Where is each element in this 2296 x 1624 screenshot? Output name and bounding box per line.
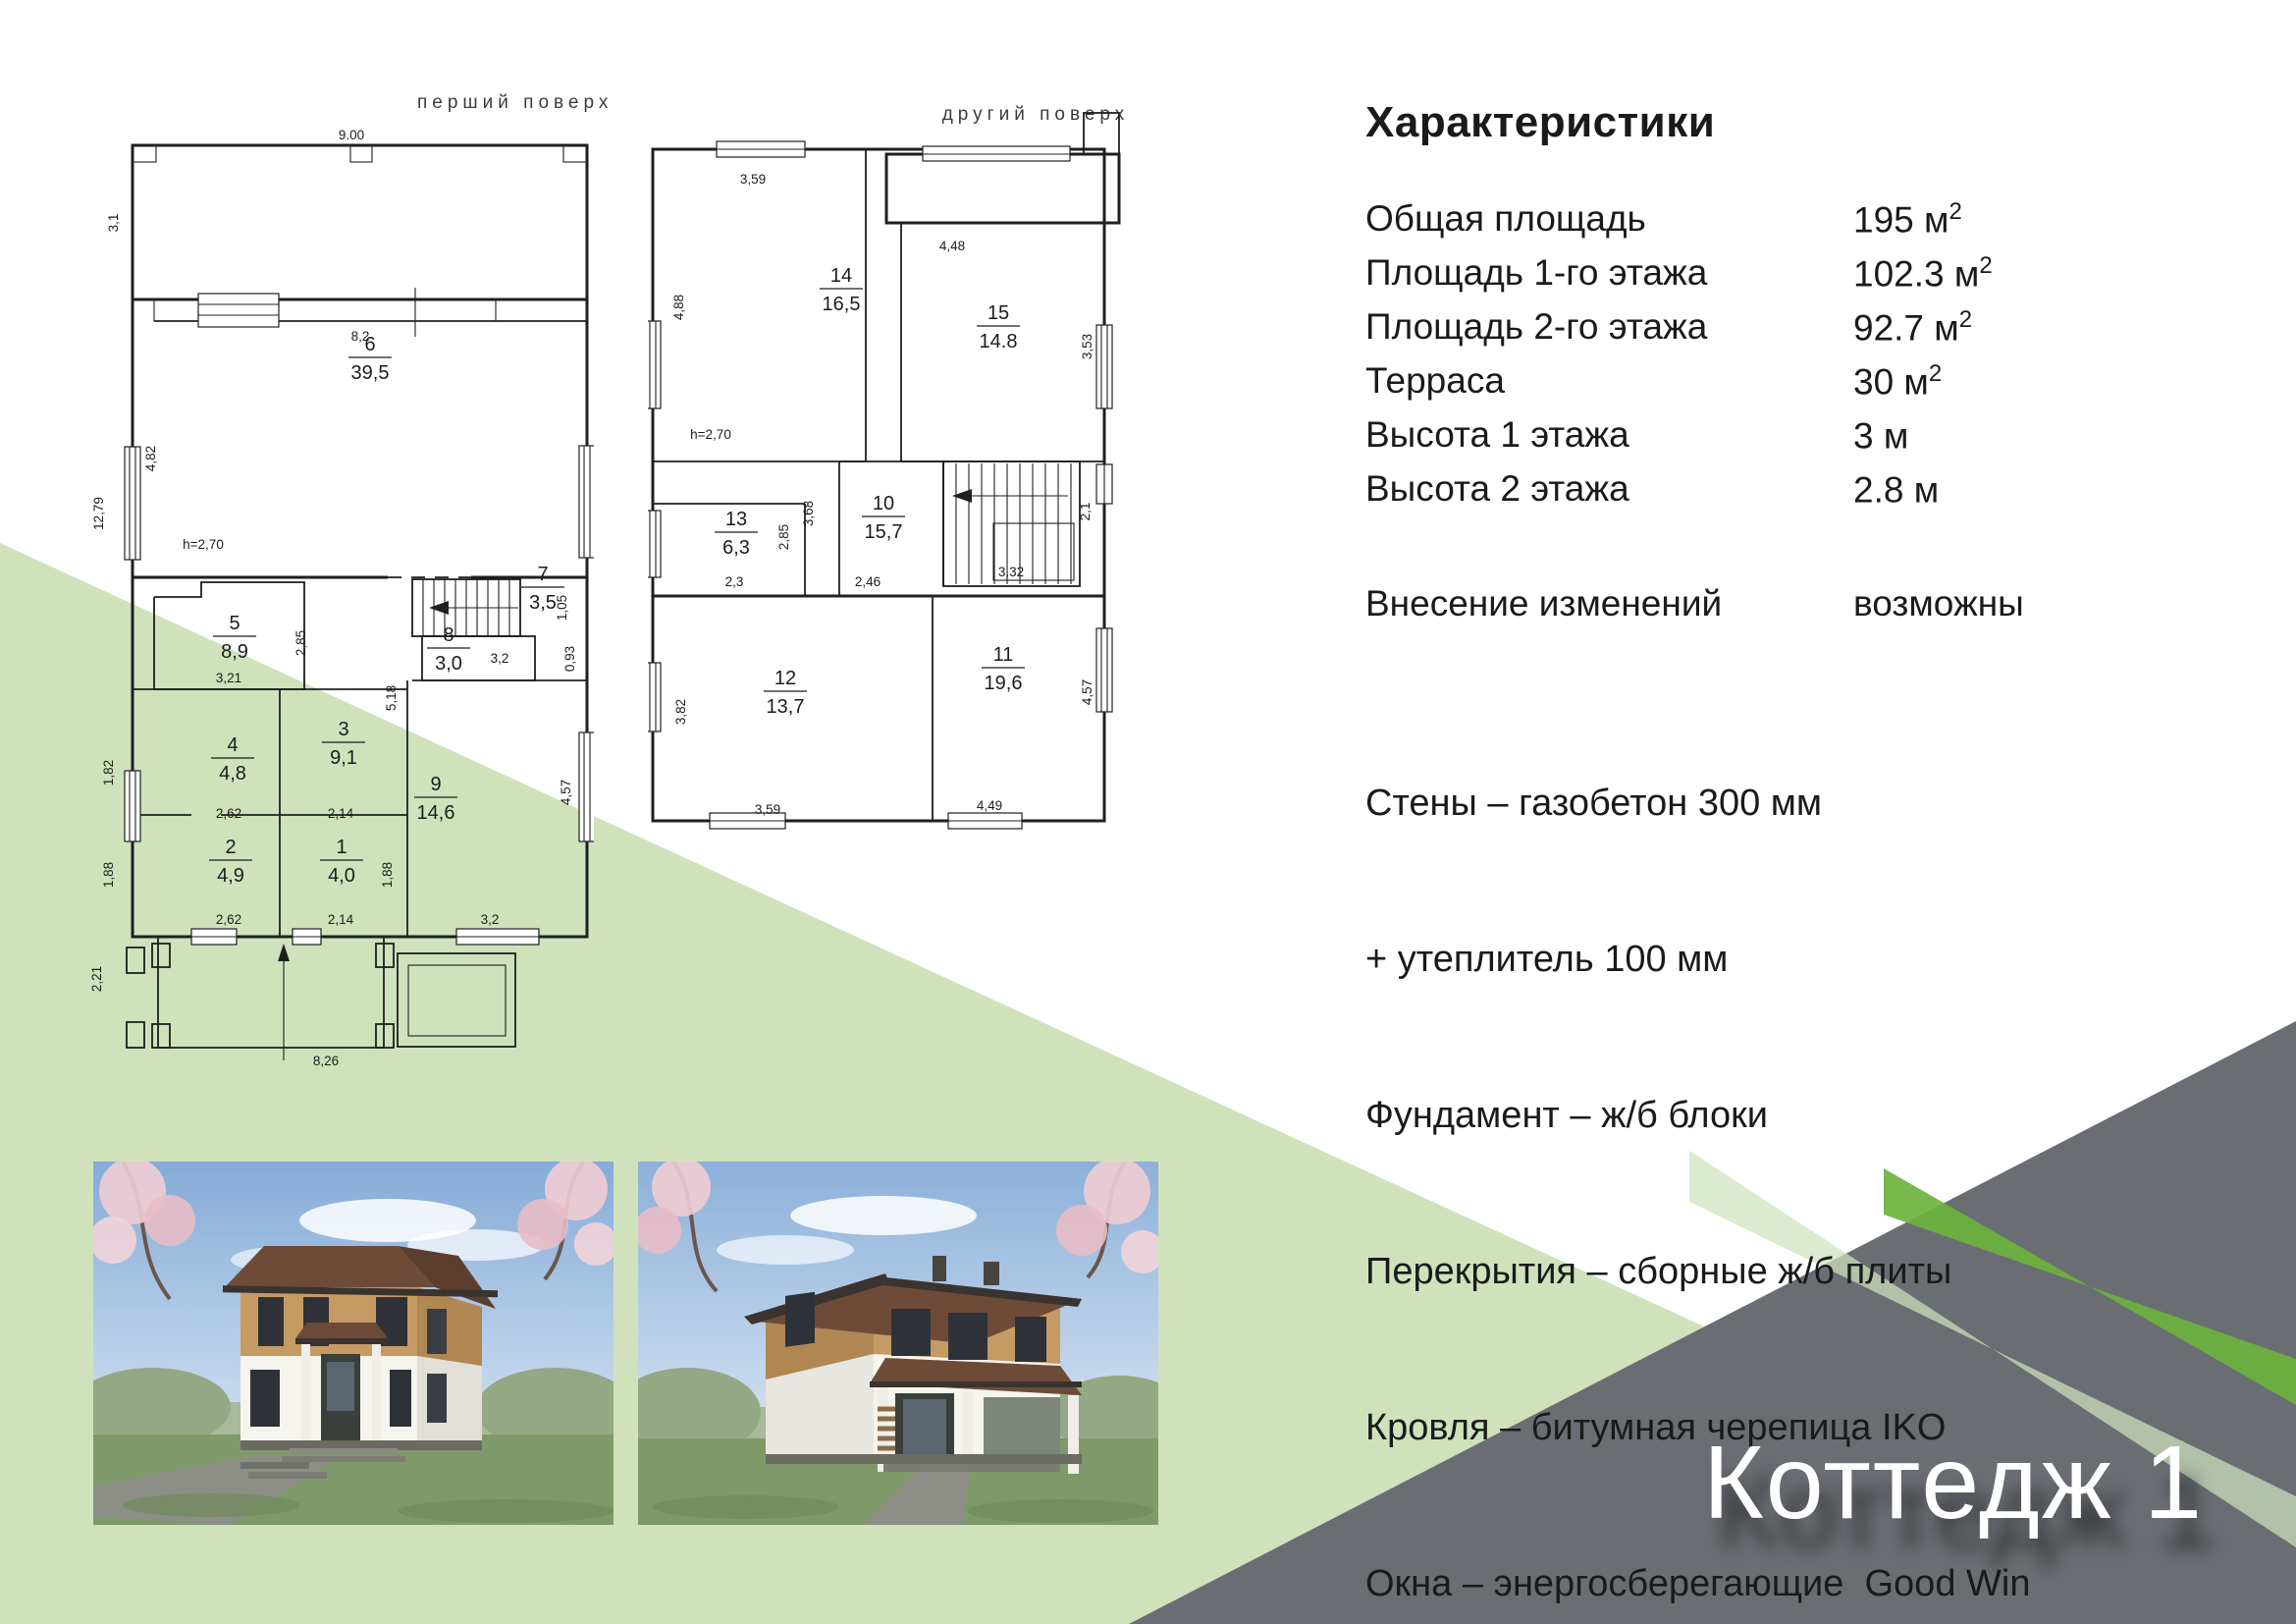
dimension-label: 4,88: [671, 295, 686, 320]
specs-title: Характеристики: [1365, 98, 1715, 147]
plan2-outer-wall: [653, 149, 1104, 821]
plan1-window: [579, 732, 594, 841]
spec-label: Общая площадь: [1365, 198, 1646, 240]
dimension-label: 9.00: [339, 128, 364, 142]
plan1-porch-post: [152, 944, 170, 967]
room-area: 9,1: [330, 747, 357, 769]
spec-label: Высота 1 этажа: [1365, 414, 1629, 456]
dimension-label: 8,2: [351, 329, 370, 344]
dimension-label: 0,93: [562, 646, 577, 672]
changes-note-value: возможны: [1853, 583, 2024, 624]
room-number: 5: [229, 613, 240, 634]
plan2-window: [923, 146, 1070, 161]
specs-table: Общая площадь 195 м2 Площадь 1-го этажа …: [1365, 198, 2288, 522]
room-number: 9: [430, 774, 441, 795]
room-number: 15: [988, 302, 1009, 324]
dimension-label: 2,62: [216, 912, 241, 927]
room-number: 10: [873, 493, 894, 514]
plan1-corner-block: [563, 145, 587, 162]
plan1-porch-post: [127, 947, 144, 973]
plan1-window: [125, 771, 140, 841]
dimension-label: 2,62: [216, 806, 241, 821]
changes-note-label: Внесение изменений: [1365, 583, 1722, 624]
dimension-label: 1,05: [555, 595, 569, 621]
dimension-label: 2,14: [328, 806, 354, 821]
spec-row: Площадь 2-го этажа 92.7 м2: [1365, 306, 2288, 360]
room-area: 19,6: [985, 673, 1023, 694]
room-area: 4,9: [217, 865, 244, 887]
plan2-window: [1096, 628, 1112, 712]
dimension-label: 4,57: [559, 780, 573, 805]
plan2-window: [717, 141, 805, 157]
house-render-front-photo: [93, 1162, 614, 1525]
brochure-slide: перший поверх: [0, 0, 2296, 1624]
dimension-label: h=2,70: [690, 427, 731, 442]
room-area: 3,5: [529, 592, 557, 614]
plan2-window: [1096, 464, 1112, 504]
room-number: 8: [443, 624, 454, 646]
plan1-window: [125, 447, 140, 560]
dimension-label: 1,88: [101, 862, 116, 888]
dimension-label: 2,14: [328, 912, 354, 927]
room-number: 13: [725, 509, 747, 530]
room-area: 4,0: [328, 865, 355, 887]
spec-value: 195 м2: [1853, 198, 1962, 241]
dimension-label: 3,1: [106, 214, 121, 233]
spec-label: Площадь 1-го этажа: [1365, 252, 1707, 294]
room-number: 12: [774, 668, 796, 689]
room-area: 14.8: [980, 331, 1018, 352]
changes-note: Внесение изменений возможны: [1365, 583, 2288, 637]
dimension-label: 3,32: [998, 565, 1024, 579]
plan2-window: [1096, 325, 1112, 408]
dimension-label: 3,68: [801, 501, 816, 526]
plan2-stair-arrowhead: [952, 489, 972, 503]
plan2-balcony: [886, 154, 1119, 223]
plan1-stair-arrowhead: [429, 601, 449, 615]
dimension-label: 2,3: [725, 574, 744, 589]
plan1-porch-post: [127, 1022, 144, 1048]
plan1-window: [293, 929, 321, 945]
plan1-terrace-slab: [398, 953, 515, 1047]
spec-value: 3 м: [1853, 414, 1908, 457]
room-area: 3,0: [435, 653, 462, 675]
dimension-label: 2,21: [89, 966, 104, 992]
room-number: 1: [336, 837, 347, 858]
plan1-porch-post: [376, 1024, 394, 1048]
first-floor-plan: 639,558,973,583,044,839,1914,624,914,09.…: [83, 83, 594, 1075]
room-area: 39,5: [351, 362, 390, 384]
dimension-label: 3,82: [673, 699, 688, 725]
room-area: 15,7: [865, 521, 903, 543]
plan1-porch-post: [152, 1024, 170, 1048]
room-number: 2: [225, 837, 236, 858]
room-area: 4,8: [219, 763, 246, 785]
room-number: 4: [227, 734, 238, 756]
plan1-window: [198, 294, 279, 327]
dimension-label: 1,82: [101, 760, 116, 785]
plan2-window: [648, 663, 661, 731]
spec-value: 102.3 м2: [1853, 252, 1993, 295]
dimension-label: 4,82: [143, 446, 158, 471]
dimension-label: 2,46: [855, 574, 881, 589]
dimension-label: h=2,70: [183, 537, 224, 552]
dimension-label: 4,48: [939, 239, 965, 253]
spec-value: 2.8 м: [1853, 468, 1939, 511]
plan2-window: [948, 813, 1022, 829]
plan1-window: [456, 929, 539, 945]
dimension-label: 3,2: [481, 912, 500, 927]
room-number: 14: [830, 265, 852, 287]
construction-line: Перекрытия – сборные ж/б плиты: [1365, 1246, 2030, 1298]
construction-line: Окна – энергосберегающие Good Win: [1365, 1558, 2030, 1610]
dimension-label: 3,59: [740, 172, 766, 187]
room-area: 8,9: [221, 641, 248, 663]
plan1-entry-arrowhead: [278, 944, 290, 961]
page-title: Коттедж 1: [1669, 1424, 2238, 1543]
dimension-label: 2,85: [776, 524, 791, 550]
plan1-terrace-slab-inner: [408, 965, 506, 1036]
construction-line: Фундамент – ж/б блоки: [1365, 1090, 2030, 1142]
plan1-corner-block: [133, 145, 156, 162]
dimension-label: 12,79: [91, 497, 106, 530]
dimension-label: 2,85: [294, 630, 308, 656]
room-area: 6,3: [722, 537, 750, 559]
room-area: 14,6: [417, 802, 455, 824]
spec-row: Общая площадь 195 м2: [1365, 198, 2288, 252]
plan2-window: [648, 511, 661, 577]
room-area: 16,5: [823, 294, 861, 315]
dimension-label: 3,53: [1080, 334, 1095, 359]
plan2-window: [648, 321, 661, 408]
dimension-label: 4,49: [977, 798, 1002, 813]
spec-value: 30 м2: [1853, 360, 1942, 403]
dimension-label: 5,18: [384, 685, 399, 711]
second-floor-plan: 1416,51514.81015,7136,31213,71119,63,594…: [648, 83, 1139, 849]
dimension-label: 3,59: [755, 802, 780, 817]
dimension-label: 2,1: [1078, 503, 1093, 521]
dimension-label: 3,2: [491, 651, 509, 666]
room-number: 3: [338, 719, 348, 740]
room-number: 7: [537, 564, 548, 585]
dimension-label: 8,26: [313, 1054, 339, 1068]
plan1-porch-post: [376, 944, 394, 967]
spec-row: Терраса 30 м2: [1365, 360, 2288, 414]
room-number: 11: [993, 644, 1014, 666]
spec-label: Терраса: [1365, 360, 1505, 402]
dimension-label: 4,57: [1080, 679, 1095, 705]
dimension-label: 3,21: [216, 671, 241, 685]
plan1-driveway: [158, 937, 384, 1048]
spec-row: Высота 1 этажа 3 м: [1365, 414, 2288, 468]
construction-line: + утеплитель 100 мм: [1365, 934, 2030, 986]
construction-line: Стены – газобетон 300 мм: [1365, 778, 2030, 830]
spec-label: Высота 2 этажа: [1365, 468, 1629, 510]
dimension-label: 1,88: [380, 862, 395, 888]
spec-value: 92.7 м2: [1853, 306, 1972, 349]
room-area: 13,7: [767, 696, 805, 718]
spec-label: Площадь 2-го этажа: [1365, 306, 1707, 348]
spec-row: Площадь 1-го этажа 102.3 м2: [1365, 252, 2288, 306]
spec-row: Высота 2 этажа 2.8 м: [1365, 468, 2288, 522]
plan1-window: [191, 929, 237, 945]
house-render-terrace-photo: [638, 1162, 1158, 1525]
plan1-window: [579, 446, 594, 558]
plan1-chimney-notch: [350, 145, 372, 162]
